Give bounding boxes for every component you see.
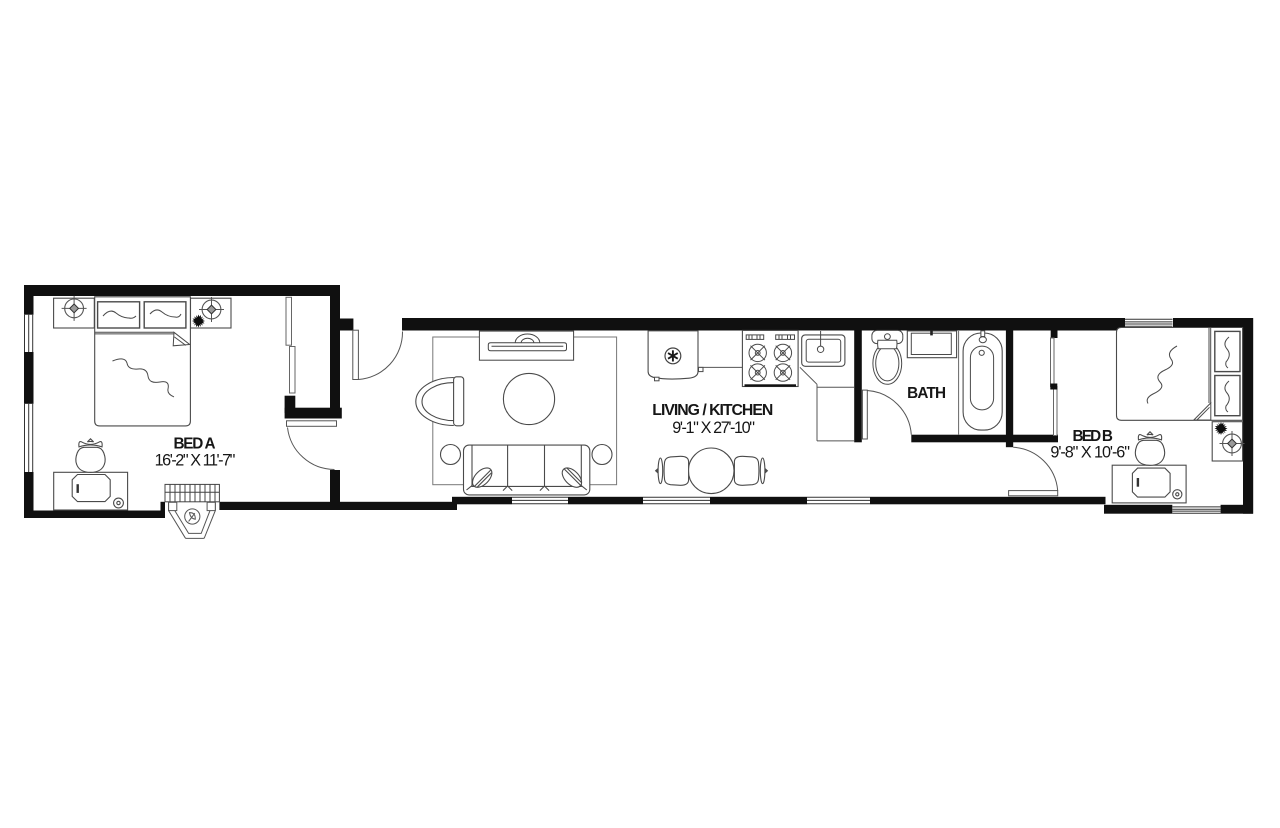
svg-text:BED A: BED A xyxy=(174,435,216,452)
svg-text:9'-8" X 10'-6": 9'-8" X 10'-6" xyxy=(1050,444,1130,462)
svg-text:LIVING / KITCHEN: LIVING / KITCHEN xyxy=(652,402,773,419)
svg-text:BATH: BATH xyxy=(907,385,946,402)
svg-text:16'-2" X 11'-7": 16'-2" X 11'-7" xyxy=(155,452,236,470)
svg-text:BED B: BED B xyxy=(1072,428,1113,445)
svg-text:9'-1" X 27'-10": 9'-1" X 27'-10" xyxy=(672,419,755,437)
